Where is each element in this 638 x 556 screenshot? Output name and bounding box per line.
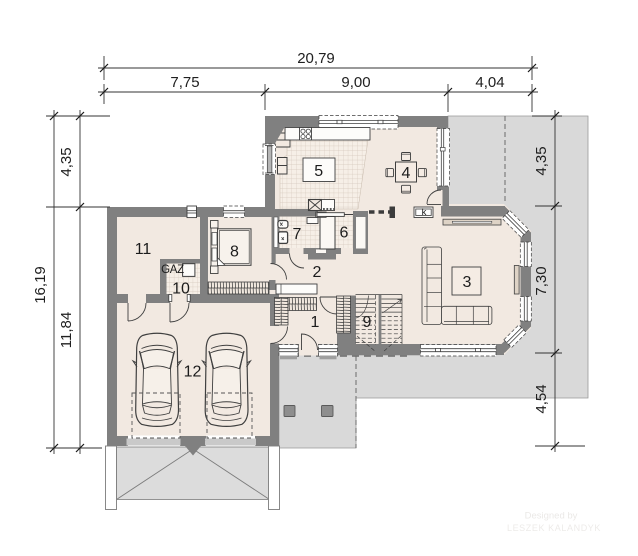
svg-text:12: 12 (184, 363, 202, 380)
svg-text:9,00: 9,00 (341, 74, 370, 91)
svg-text:1: 1 (311, 314, 320, 331)
svg-text:LESZEK KALANDYK: LESZEK KALANDYK (507, 523, 601, 533)
svg-text:8: 8 (230, 244, 239, 261)
svg-text:16,19: 16,19 (32, 266, 49, 304)
svg-text:20,79: 20,79 (297, 50, 335, 67)
svg-text:5: 5 (314, 163, 323, 180)
svg-text:7,75: 7,75 (170, 74, 199, 91)
svg-text:6: 6 (340, 225, 349, 242)
svg-text:Designed by: Designed by (525, 511, 578, 522)
svg-text:k: k (422, 207, 427, 218)
svg-text:10: 10 (172, 280, 190, 297)
svg-text:3: 3 (463, 274, 472, 291)
svg-text:4,04: 4,04 (475, 74, 504, 91)
svg-text:9: 9 (363, 314, 372, 331)
svg-text:4,35: 4,35 (58, 147, 75, 176)
svg-text:4,35: 4,35 (533, 146, 550, 175)
svg-text:11,84: 11,84 (58, 312, 75, 348)
svg-text:7,30: 7,30 (533, 266, 550, 295)
svg-text:GAZ: GAZ (161, 264, 184, 276)
svg-text:4,54: 4,54 (533, 384, 550, 413)
svg-text:4: 4 (402, 165, 411, 182)
svg-text:11: 11 (135, 241, 152, 258)
svg-text:2: 2 (313, 264, 322, 281)
svg-text:7: 7 (293, 226, 302, 243)
